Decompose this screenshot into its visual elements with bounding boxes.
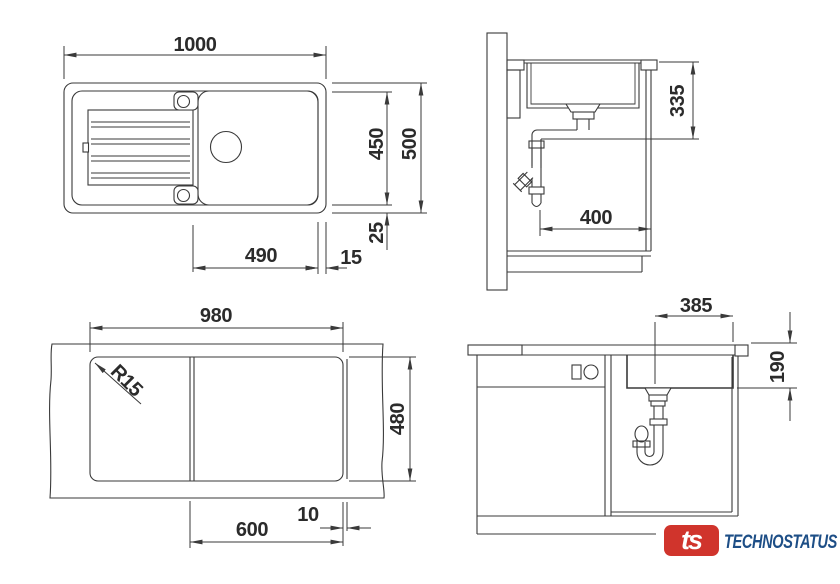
dim-label-450: 450 xyxy=(366,128,388,160)
siphon-pipes xyxy=(513,130,589,207)
dim-label-600: 600 xyxy=(236,519,268,541)
dim-drain-offset-385: 385 xyxy=(655,295,733,384)
bowl-front xyxy=(627,355,733,388)
countertop-front xyxy=(468,345,748,356)
dim-bowl-section-600: 600 xyxy=(190,501,347,548)
drainboard xyxy=(83,110,193,185)
dim-bowl-width-490: 490 xyxy=(193,225,318,272)
dim-label-10: 10 xyxy=(297,504,319,526)
dim-wall-clearance-400: 400 xyxy=(540,207,651,236)
cabinet-side xyxy=(507,70,651,272)
dim-edge-gap-15: 15 xyxy=(297,222,362,274)
dim-label-480: 480 xyxy=(387,403,409,435)
technostatus-logo: ts TECHNOSTATUS xyxy=(664,525,838,556)
top-view: 1000 450 500 25 490 15 xyxy=(64,34,427,274)
bowl-section xyxy=(527,63,639,108)
tap-hole-bottom xyxy=(178,190,190,202)
dim-label-980: 980 xyxy=(200,305,232,327)
dim-overall-width-1000: 1000 xyxy=(64,34,326,79)
drain-hole xyxy=(211,132,242,163)
drain-assembly xyxy=(566,104,600,130)
dim-edge-line-gap-10: 10 xyxy=(297,504,371,528)
dim-basin-depth-450: 450 xyxy=(332,92,392,205)
dim-bowl-depth-190: 190 xyxy=(737,312,797,421)
cutout-view: R15 980 480 600 10 xyxy=(50,305,416,548)
dim-label-500: 500 xyxy=(399,128,421,160)
dim-label-385: 385 xyxy=(680,295,712,317)
logo-monogram: ts xyxy=(681,525,703,555)
dim-label-335: 335 xyxy=(667,85,689,117)
drawing-canvas: 1000 450 500 25 490 15 xyxy=(0,0,840,584)
dim-label-490: 490 xyxy=(245,245,277,267)
dim-label-1000: 1000 xyxy=(174,34,217,56)
dishwasher-knob xyxy=(584,365,598,379)
tap-hole-top xyxy=(178,96,190,108)
overflow-mark xyxy=(83,143,89,152)
wall-section xyxy=(487,33,507,290)
tap-holes xyxy=(174,92,198,204)
dishwasher-button xyxy=(572,365,581,379)
dim-label-15: 15 xyxy=(340,247,362,269)
dim-label-25: 25 xyxy=(366,222,388,244)
cabinet-front xyxy=(477,355,738,534)
siphon-inlet-cap xyxy=(635,426,648,442)
side-section-view: 335 400 xyxy=(487,33,699,290)
dim-drain-height-335: 335 xyxy=(548,62,699,139)
dim-rim-gap-25: 25 xyxy=(366,213,388,250)
technical-drawing-page: 1000 450 500 25 490 15 xyxy=(0,0,840,584)
dim-label-190: 190 xyxy=(767,351,789,383)
siphon-outlet xyxy=(513,171,534,192)
siphon-front xyxy=(633,388,671,465)
sink-bowl xyxy=(198,91,318,205)
front-section-view: 385 190 xyxy=(468,295,797,534)
dim-label-400: 400 xyxy=(580,207,612,229)
logo-brand-text: TECHNOSTATUS xyxy=(724,532,838,553)
